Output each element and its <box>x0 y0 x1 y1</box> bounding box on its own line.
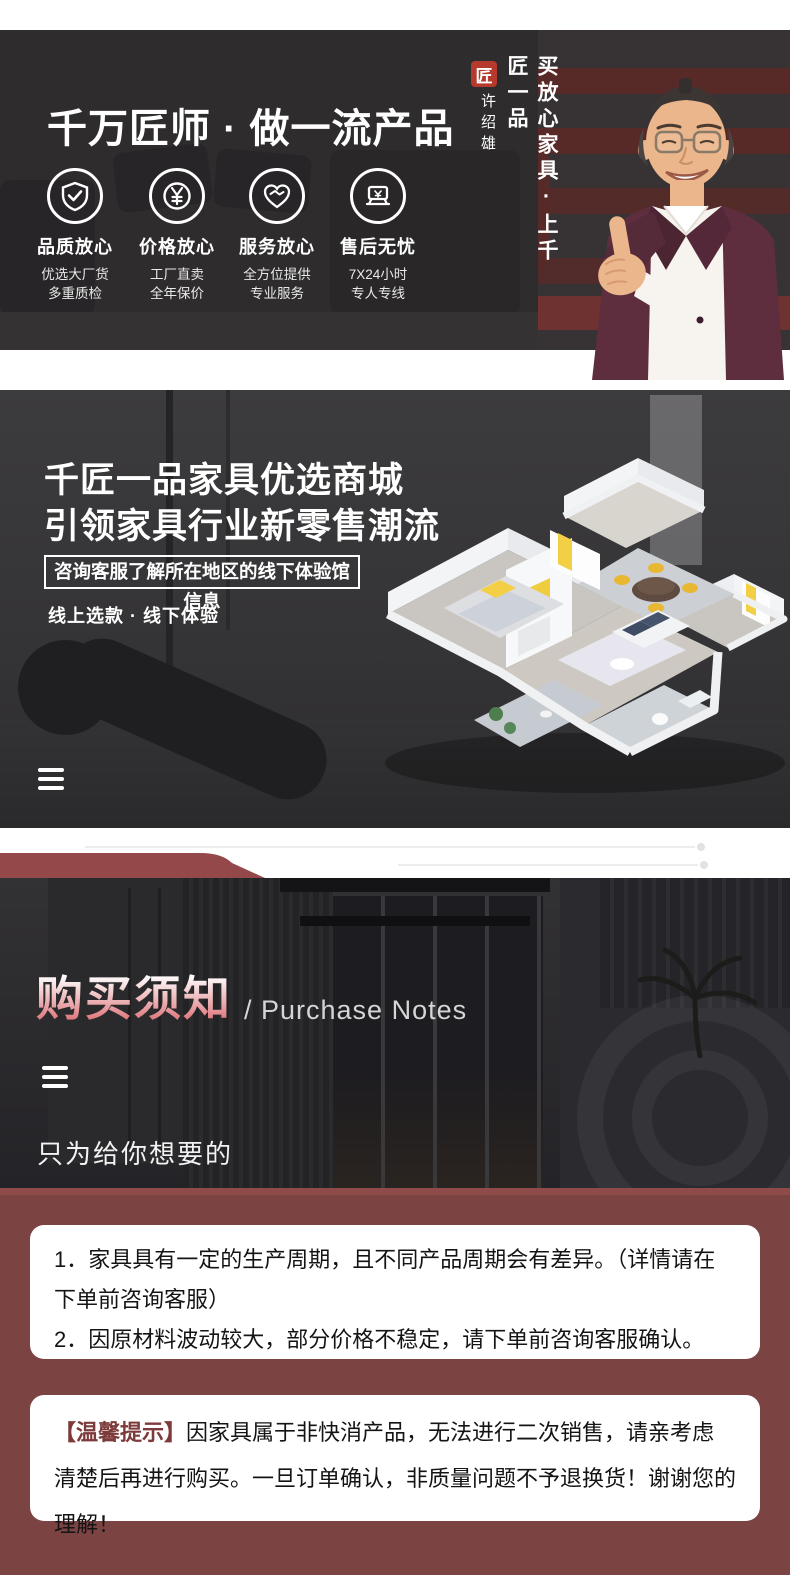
maroon-ribbon <box>0 853 265 878</box>
handshake-heart-icon <box>249 168 305 224</box>
shield-check-icon <box>47 168 103 224</box>
feature-subline: 全年保价 <box>122 284 232 303</box>
divider-line-dot <box>697 843 705 851</box>
notice-item: 2．因原材料波动较大，部分价格不稳定，请下单前咨询客服确认。 <box>54 1320 736 1360</box>
endorser-name: 许绍雄 <box>477 93 498 156</box>
feature-subline: 专人专线 <box>323 284 433 303</box>
pos-machine-icon <box>350 168 406 224</box>
bottom-white-strip <box>0 1575 790 1590</box>
feature-subline: 多重质检 <box>20 284 130 303</box>
page-root: 千万匠师 · 做一流产品 品质放心 优选大厂货多重质检 价格放心 工厂直卖全年保… <box>0 0 790 1590</box>
palm-tree-silhouette <box>630 938 760 1058</box>
divider-line <box>85 846 695 848</box>
purchase-title-block: 购买须知 / Purchase Notes <box>36 960 467 1029</box>
feature-subline: 优选大厂货 <box>20 265 130 284</box>
notice-box-production: 1．家具具有一定的生产周期，且不同产品周期会有差异。（详情请在下单前咨询客服） … <box>30 1225 760 1359</box>
purchase-title-cn: 购买须知 <box>36 960 232 1029</box>
brand-seal: 匠 <box>471 61 497 87</box>
divider-line <box>398 864 698 866</box>
banner1-title: 千万匠师 · 做一流产品 <box>47 96 455 154</box>
building-roof-slab <box>280 878 550 892</box>
notice-item: 1．家具具有一定的生产周期，且不同产品周期会有差异。（详情请在下单前咨询客服） <box>54 1240 736 1320</box>
menu-icon <box>38 768 64 795</box>
mall-banner-section: 千匠一品家具优选商城 引领家具行业新零售潮流 咨询客服了解所在地区的线下体验馆信… <box>0 390 790 828</box>
divider-line-dot <box>700 861 708 869</box>
feature-label: 售后无忧 <box>323 233 433 259</box>
notices-section: 1．家具具有一定的生产周期，且不同产品周期会有差异。（详情请在下单前咨询客服） … <box>0 1188 790 1575</box>
feature-label: 服务放心 <box>222 233 332 259</box>
purchase-notes-section: 购买须知 / Purchase Notes 只为给你想要的 JUST TO GI… <box>0 878 790 1188</box>
floorplan-illustration <box>360 418 790 818</box>
purchase-title-en: / Purchase Notes <box>244 995 467 1029</box>
notice-box-tip: 【温馨提示】因家具属于非快消产品，无法进行二次销售，请亲考虑清楚后再进行购买。一… <box>30 1395 760 1521</box>
feature-price: 价格放心 工厂直卖全年保价 <box>122 168 232 303</box>
menu-icon <box>42 1066 68 1093</box>
banner2-title-line1: 千匠一品家具优选商城 <box>44 452 404 503</box>
yen-coin-icon <box>149 168 205 224</box>
feature-label: 品质放心 <box>20 233 130 259</box>
backdrop-floor <box>0 312 538 350</box>
feature-subline: 全方位提供 <box>222 265 332 284</box>
glass-frame-lines <box>333 896 543 1188</box>
feature-service: 服务放心 全方位提供专业服务 <box>222 168 332 303</box>
lounge-chair-headrest <box>18 640 113 735</box>
feature-subline: 工厂直卖 <box>122 265 232 284</box>
feature-subline: 专业服务 <box>222 284 332 303</box>
purchase-slogan-cn: 只为给你想要的 <box>37 1134 233 1171</box>
section-top-strip <box>0 1188 790 1195</box>
feature-quality: 品质放心 优选大厂货多重质检 <box>20 168 130 303</box>
notice-tip-highlight: 【温馨提示】 <box>54 1420 186 1445</box>
building-overhang <box>300 916 530 926</box>
endorser-photo <box>548 58 790 380</box>
feature-label: 价格放心 <box>122 233 232 259</box>
banner2-note-box: 咨询客服了解所在地区的线下体验馆信息 <box>44 555 360 589</box>
feature-subline: 7X24小时 <box>323 265 433 284</box>
banner2-subline: 线上选款 · 线下体验 <box>48 602 219 628</box>
feature-aftersales: 售后无忧 7X24小时专人专线 <box>323 168 433 303</box>
